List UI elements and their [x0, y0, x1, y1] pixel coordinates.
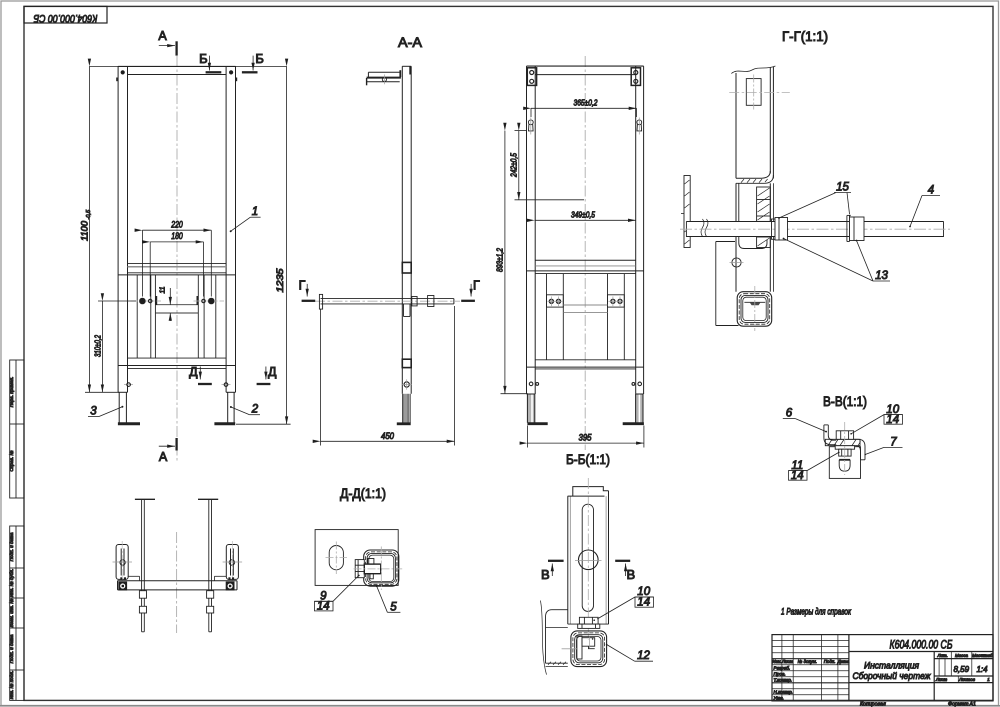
svg-text:В: В [541, 567, 550, 582]
svg-text:14: 14 [637, 597, 650, 609]
svg-text:Г: Г [473, 278, 480, 292]
svg-text:Дата: Дата [837, 659, 850, 664]
svg-text:220: 220 [171, 219, 184, 229]
svg-text:Подп.: Подп. [824, 659, 836, 664]
svg-text:3: 3 [90, 406, 97, 418]
svg-text:242±0,5: 242±0,5 [509, 153, 519, 178]
svg-text:14: 14 [791, 470, 804, 482]
svg-text:-0,5: -0,5 [86, 209, 92, 220]
svg-text:Инсталляция: Инсталляция [864, 660, 919, 671]
svg-text:Инв. № подл.: Инв. № подл. [9, 671, 14, 700]
svg-text:Лит.: Лит. [937, 653, 948, 658]
svg-text:№ докум.: № докум. [798, 659, 817, 664]
svg-text:Г: Г [299, 278, 306, 292]
svg-text:Перв. примен.: Перв. примен. [9, 377, 14, 408]
svg-text:4: 4 [928, 185, 934, 197]
svg-text:2: 2 [251, 404, 259, 416]
svg-text:Изм.: Изм. [772, 659, 781, 664]
svg-text:Б: Б [255, 51, 264, 66]
svg-text:13: 13 [875, 270, 888, 282]
svg-text:Масса: Масса [955, 653, 969, 658]
svg-text:Д: Д [189, 365, 198, 379]
svg-text:310±0,2: 310±0,2 [92, 335, 102, 357]
svg-text:450: 450 [381, 431, 395, 441]
svg-text:Б-Б(1:1): Б-Б(1:1) [566, 452, 610, 467]
svg-text:Формат: Формат [948, 702, 969, 707]
svg-text:Подп. и дата: Подп. и дата [9, 532, 14, 561]
svg-text:15: 15 [836, 182, 849, 194]
svg-text:365±0,2: 365±0,2 [574, 97, 598, 107]
svg-text:7: 7 [890, 436, 897, 448]
svg-text:6: 6 [786, 408, 793, 420]
svg-text:Разраб.: Разраб. [774, 666, 791, 671]
svg-text:К604.000.00 СБ: К604.000.00 СБ [890, 639, 953, 651]
svg-text:А1: А1 [969, 702, 976, 707]
svg-text:В-В(1:1): В-В(1:1) [823, 394, 867, 409]
svg-text:К604.000.00 СБ: К604.000.00 СБ [34, 12, 98, 24]
svg-text:5: 5 [390, 601, 397, 613]
svg-text:Копировал: Копировал [860, 702, 886, 707]
svg-text:180: 180 [171, 231, 183, 241]
svg-text:Масштаб: Масштаб [972, 653, 993, 658]
svg-text:Н.контр.: Н.контр. [774, 690, 793, 695]
svg-text:11: 11 [158, 287, 167, 294]
svg-text:8,59: 8,59 [954, 665, 970, 674]
svg-text:Листов: Листов [958, 677, 976, 682]
svg-text:А: А [159, 450, 168, 464]
svg-text:14: 14 [317, 601, 330, 613]
svg-text:893±1,2: 893±1,2 [495, 248, 505, 272]
svg-text:А-А: А-А [398, 35, 422, 50]
svg-text:Пров.: Пров. [774, 672, 786, 677]
svg-text:Д: Д [268, 365, 277, 379]
svg-text:14: 14 [886, 414, 899, 426]
svg-text:349±0,5: 349±0,5 [571, 210, 595, 220]
svg-text:Сборочный чертеж: Сборочный чертеж [853, 671, 931, 682]
svg-text:В: В [626, 567, 635, 582]
svg-text:1: 1 [252, 206, 258, 218]
svg-text:Лист: Лист [781, 659, 794, 664]
svg-text:Д-Д(1:1): Д-Д(1:1) [340, 486, 386, 501]
svg-text:1:4: 1:4 [977, 664, 988, 674]
svg-text:1235: 1235 [275, 267, 285, 292]
svg-text:Лист: Лист [935, 677, 948, 682]
svg-text:Подп. и дата: Подп. и дата [9, 634, 14, 663]
svg-text:395: 395 [579, 432, 593, 442]
svg-text:1 Размеры для справок: 1 Размеры для справок [781, 607, 852, 617]
svg-text:Справ. №: Справ. № [9, 451, 14, 472]
svg-text:Б: Б [199, 51, 208, 66]
svg-text:1100: 1100 [79, 220, 89, 241]
svg-text:Взам. инв. №: Взам. инв. № [9, 599, 14, 627]
svg-text:Г-Г(1:1): Г-Г(1:1) [782, 29, 828, 44]
svg-text:А: А [158, 29, 167, 43]
svg-text:Утв.: Утв. [774, 696, 784, 701]
svg-text:12: 12 [637, 650, 650, 662]
svg-text:Инв. № дубл.: Инв. № дубл. [9, 569, 14, 597]
svg-text:Т.контр.: Т.контр. [774, 678, 793, 683]
